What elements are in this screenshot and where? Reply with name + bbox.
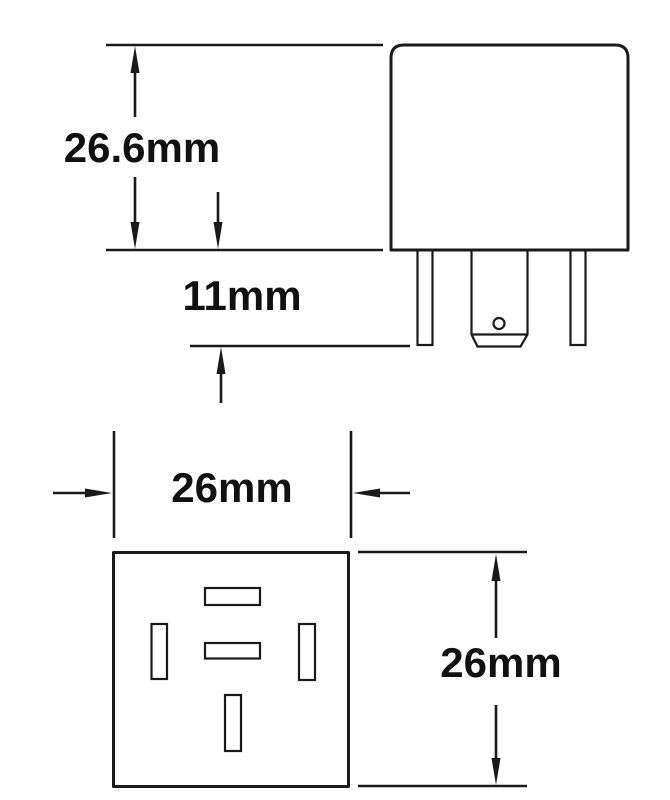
relay-dimension-drawing: 26.6mm 11mm 26mm bbox=[0, 0, 670, 800]
dimension-body-height: 26.6mm bbox=[64, 45, 383, 250]
arrowhead-down-icon bbox=[131, 222, 140, 249]
arrowhead-up-icon bbox=[492, 554, 501, 581]
dimension-base-width: 26mm bbox=[53, 431, 410, 538]
terminal-slot-left bbox=[152, 624, 168, 679]
relay-side-view bbox=[391, 45, 628, 347]
side-view-right-pin bbox=[571, 250, 586, 345]
body-height-label: 26.6mm bbox=[64, 124, 220, 171]
relay-dimension-diagram-canvas: 26.6mm 11mm 26mm bbox=[0, 0, 670, 800]
arrowhead-right-icon bbox=[85, 489, 112, 498]
relay-bottom-view bbox=[114, 553, 349, 787]
arrowhead-down-icon bbox=[214, 222, 223, 249]
side-view-blade-pin bbox=[472, 250, 528, 347]
terminal-slot-bottom bbox=[225, 695, 241, 751]
arrowhead-left-icon bbox=[353, 489, 380, 498]
side-view-left-pin bbox=[418, 250, 433, 345]
terminal-slot-center bbox=[205, 643, 260, 659]
arrowhead-up-icon bbox=[217, 347, 226, 374]
terminal-slot-top bbox=[205, 588, 260, 605]
terminal-slot-right bbox=[299, 624, 315, 680]
dimension-base-height: 26mm bbox=[358, 552, 562, 786]
pin-length-label: 11mm bbox=[182, 272, 301, 319]
arrowhead-down-icon bbox=[492, 758, 501, 785]
dimension-pin-length: 11mm bbox=[182, 192, 410, 403]
relay-body-outline bbox=[391, 45, 628, 250]
blade-pin-hole bbox=[494, 318, 505, 329]
base-width-label: 26mm bbox=[171, 464, 292, 511]
base-height-label: 26mm bbox=[440, 639, 561, 686]
arrowhead-up-icon bbox=[131, 46, 140, 73]
